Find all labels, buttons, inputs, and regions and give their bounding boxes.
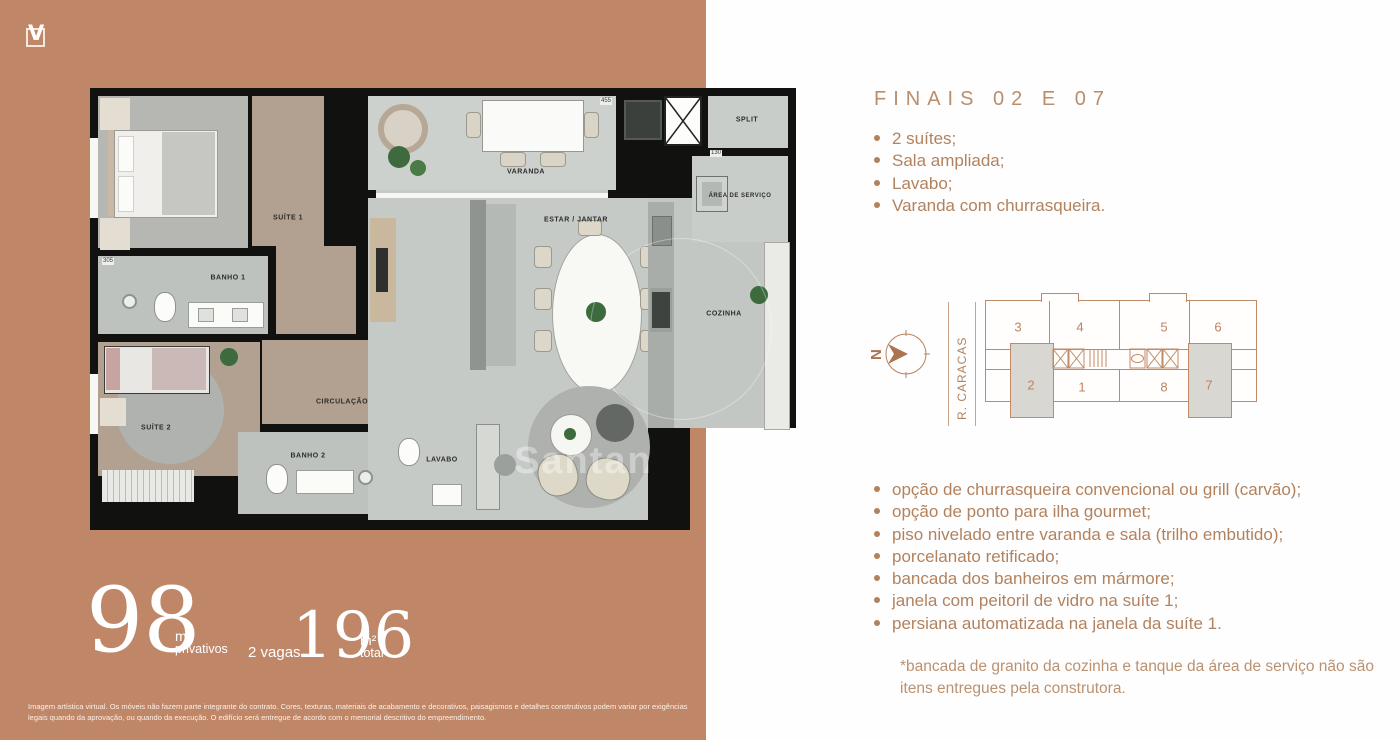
suite1-wood-floor [252, 96, 324, 246]
list-item: Sala ampliada; [874, 150, 1105, 172]
chair-icon [534, 288, 552, 310]
sink-icon [232, 308, 248, 322]
room-label-circulacao: CIRCULAÇÃO [316, 399, 368, 406]
private-area-unit-block: m² privativos [175, 630, 228, 656]
bed-blanket-icon [162, 132, 215, 215]
toilet-icon [266, 464, 288, 494]
bullet-icon [874, 553, 880, 559]
sofa-seat-icon [486, 204, 516, 366]
total-area-label: total [360, 647, 384, 660]
window-suite2 [90, 374, 98, 434]
keyplan-divider [1119, 369, 1120, 401]
bullet-icon [874, 180, 880, 186]
room-label-lavabo: LAVABO [426, 457, 458, 464]
list-item: persiana automatizada na janela da suíte… [874, 613, 1301, 635]
bullet-icon [874, 575, 880, 581]
room-label-varanda: VARANDA [507, 169, 545, 176]
tv-icon [376, 248, 388, 292]
list-item: bancada dos banheiros em mármore; [874, 568, 1301, 590]
option-text: janela com peitoril de vidro na suíte 1; [892, 590, 1178, 612]
dim-label: 130 [710, 150, 722, 157]
logo-letter: V [28, 21, 44, 45]
brochure-page: V [0, 0, 1400, 740]
keyplan-unit-3: 3 [1014, 320, 1021, 335]
list-item: 2 suítes; [874, 128, 1105, 150]
option-text: opção de churrasqueira convencional ou g… [892, 479, 1301, 501]
sink-icon [198, 308, 214, 322]
keyplan-unit-6: 6 [1214, 320, 1221, 335]
ottoman-icon [596, 404, 634, 442]
street-name: R. CARACAS [955, 308, 969, 420]
keyplan-divider [1189, 301, 1190, 349]
sink-icon [432, 484, 462, 506]
bullet-icon [874, 620, 880, 626]
desk-chair-icon [494, 454, 516, 476]
sofa-back-icon [470, 200, 486, 370]
window-suite1 [90, 138, 98, 218]
bullet-icon [874, 486, 880, 492]
private-area-label: privativos [175, 643, 228, 656]
nightstand-icon [100, 98, 130, 130]
keyplan-unit-8: 8 [1160, 380, 1167, 395]
room-label-area-servico: ÁREA DE SERVIÇO [709, 193, 772, 199]
street-edge-line [948, 302, 949, 426]
plant-icon [388, 146, 410, 168]
brand-logo: V [26, 28, 45, 47]
options-list: opção de churrasqueira convencional ou g… [874, 479, 1301, 635]
option-text: persiana automatizada na janela da suíte… [892, 613, 1222, 635]
footnote-text: *bancada de granito da cozinha e tanque … [900, 656, 1400, 699]
chair-icon [540, 152, 566, 167]
keyplan-unit-2: 2 [1027, 378, 1034, 393]
keyplan-unit-7: 7 [1205, 378, 1212, 393]
option-text: porcelanato retificado; [892, 546, 1059, 568]
street-edge-line [975, 302, 976, 426]
total-area-unit-block: m² total [360, 634, 384, 660]
plant-icon [410, 160, 426, 176]
varanda-sliding-door [376, 190, 608, 198]
features-list: 2 suítes; Sala ampliada; Lavabo; Varanda… [874, 128, 1105, 217]
toilet-icon [154, 292, 176, 322]
floor-plan: Santan SUÍTE 1 BANHO 1 SUÍTE 2 CIRCULAÇÃ… [90, 88, 796, 530]
shaft-icon [664, 96, 702, 146]
option-text: opção de ponto para ilha gourmet; [892, 501, 1151, 523]
suite1-closet [328, 96, 356, 330]
feature-text: Sala ampliada; [892, 150, 1004, 172]
dim-label: 305 [102, 258, 114, 265]
chair-icon [466, 112, 481, 138]
bullet-icon [874, 135, 880, 141]
chair-icon [500, 152, 526, 167]
list-item: janela com peitoril de vidro na suíte 1; [874, 590, 1301, 612]
room-label-banho2: BANHO 2 [290, 453, 325, 460]
list-item: piso nivelado entre varanda e sala (tril… [874, 524, 1301, 546]
vanity-icon [296, 470, 354, 494]
bullet-icon [874, 531, 880, 537]
keyplan-notch [1041, 293, 1079, 302]
dim-label: 455 [600, 98, 612, 105]
keyplan-unit-5: 5 [1160, 320, 1167, 335]
keyplan-unit-1: 1 [1078, 380, 1085, 395]
churrasqueira-grill-icon [624, 100, 662, 140]
option-text: piso nivelado entre varanda e sala (tril… [892, 524, 1283, 546]
pillow-icon [118, 136, 134, 172]
watermark-text: Santan [514, 440, 653, 483]
feature-text: Varanda com churrasqueira. [892, 195, 1105, 217]
keyplan-notch [1149, 293, 1187, 302]
list-item: opção de ponto para ilha gourmet; [874, 501, 1301, 523]
nightstand-icon [100, 398, 126, 426]
list-item: porcelanato retificado; [874, 546, 1301, 568]
room-label-estar: ESTAR / JANTAR [544, 217, 608, 224]
total-area-value: 196 [292, 604, 414, 668]
suite2-wardrobe [102, 470, 194, 502]
chair-icon [534, 330, 552, 352]
bullet-icon [874, 202, 880, 208]
pillow-icon [118, 176, 134, 212]
room-label-suite1: SUÍTE 1 [273, 215, 303, 222]
chair-icon [584, 112, 599, 138]
bullet-icon [874, 508, 880, 514]
north-compass-icon: N [866, 326, 930, 382]
elevator-core-icon [1052, 348, 1188, 370]
plant-icon [564, 428, 576, 440]
keyplan-unit-4: 4 [1076, 320, 1083, 335]
bed-blanket-icon [152, 348, 206, 390]
chair-icon [534, 246, 552, 268]
feature-text: 2 suítes; [892, 128, 956, 150]
list-item: Lavabo; [874, 173, 1105, 195]
feature-text: Lavabo; [892, 173, 953, 195]
shower-icon [358, 470, 373, 485]
room-label-split: SPLIT [736, 117, 758, 124]
svg-text:N: N [868, 349, 885, 360]
pillow-icon [106, 348, 120, 390]
option-text: bancada dos banheiros em mármore; [892, 568, 1175, 590]
disclaimer-text: Imagem artística virtual. Os móveis não … [28, 701, 700, 723]
shower-icon [122, 294, 137, 309]
nightstand-icon [100, 218, 130, 250]
bullet-icon [874, 597, 880, 603]
list-item: Varanda com churrasqueira. [874, 195, 1105, 217]
room-label-suite2: SUÍTE 2 [141, 425, 171, 432]
page-title: FINAIS 02 E 07 [874, 88, 1111, 111]
keyplan-building: 3 4 5 6 2 1 8 7 [985, 300, 1257, 402]
list-item: opção de churrasqueira convencional ou g… [874, 479, 1301, 501]
room-label-banho1: BANHO 1 [210, 275, 245, 282]
room-label-cozinha: COZINHA [706, 311, 741, 318]
keyplan-divider [1119, 301, 1120, 349]
plant-icon [220, 348, 238, 366]
keyplan-divider [1049, 301, 1050, 349]
watermark-circle [590, 238, 772, 420]
bullet-icon [874, 157, 880, 163]
toilet-icon [398, 438, 420, 466]
varanda-table-icon [482, 100, 584, 152]
